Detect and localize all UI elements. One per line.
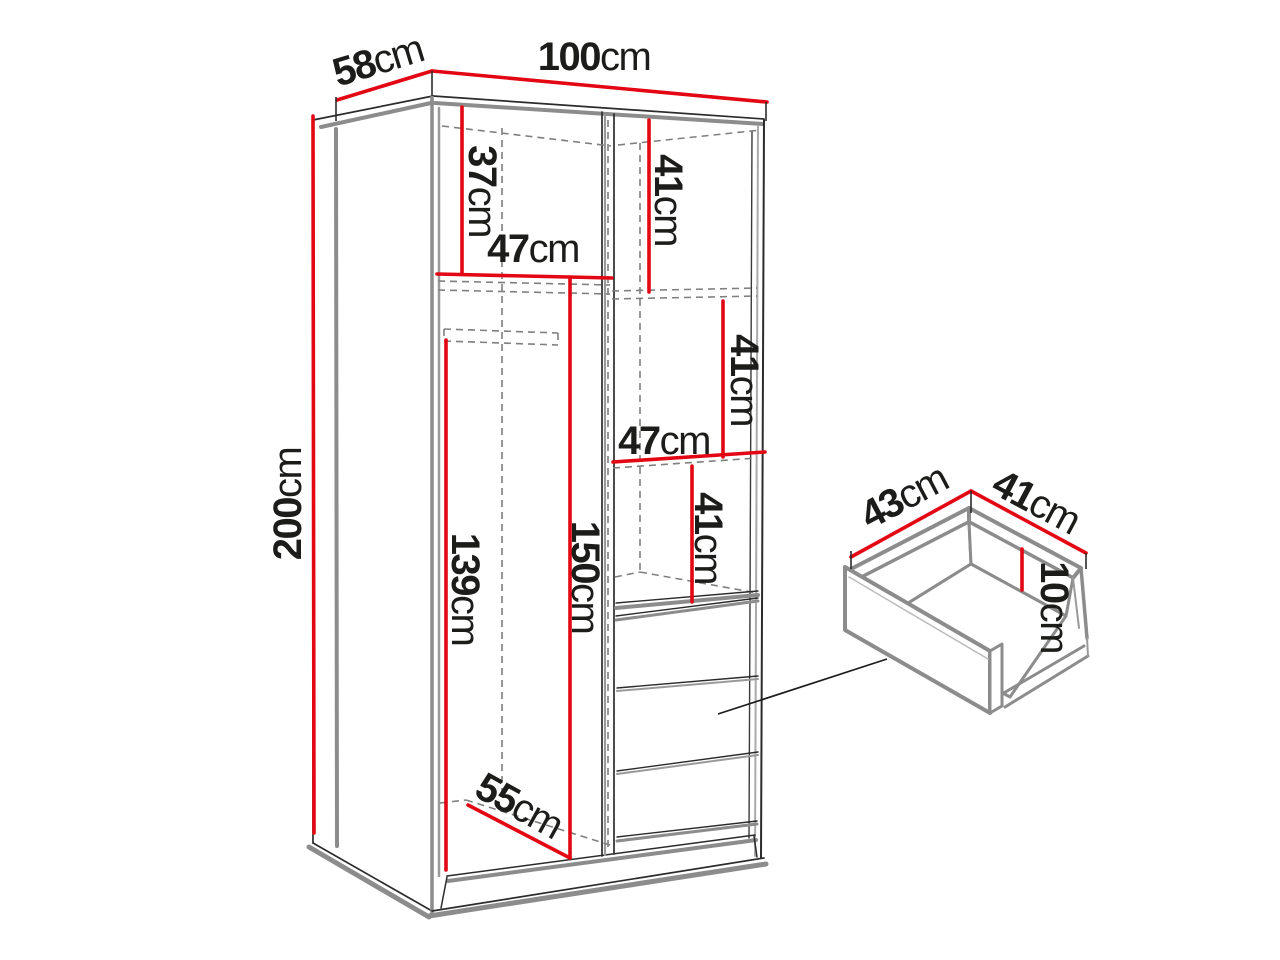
dimension-lines	[313, 71, 1086, 870]
drawer-inner-height-label: 10cm	[1034, 561, 1074, 653]
right-upper-height-label: 41cm	[648, 154, 688, 246]
dim-line-200	[313, 116, 314, 833]
right-middle-height-label: 41cm	[724, 334, 764, 426]
width-dimension-label: 100cm	[538, 37, 651, 77]
diagram-linework	[0, 0, 1280, 960]
left-hanging-height-label: 150cm	[565, 521, 605, 634]
height-dimension-label: 200cm	[268, 448, 308, 561]
right-shelf-width-label: 47cm	[618, 421, 710, 461]
left-rail-drop-label: 139cm	[445, 533, 485, 646]
width-unit: cm	[600, 35, 650, 79]
right-lower-height-label: 41cm	[688, 492, 728, 584]
width-value: 100	[538, 35, 600, 79]
wardrobe-drawer-stack	[616, 591, 758, 841]
height-unit: cm	[266, 448, 310, 498]
left-shelf-width-label: 47cm	[487, 229, 579, 269]
dim-line-47-left	[437, 274, 612, 278]
height-value: 200	[266, 498, 310, 560]
left-upper-height-label: 37cm	[462, 145, 502, 237]
wardrobe-dimensions-diagram: 58cm 100cm 200cm 37cm 47cm 41cm 41cm 47c…	[0, 0, 1280, 960]
drawer-pointer-line	[718, 659, 887, 714]
